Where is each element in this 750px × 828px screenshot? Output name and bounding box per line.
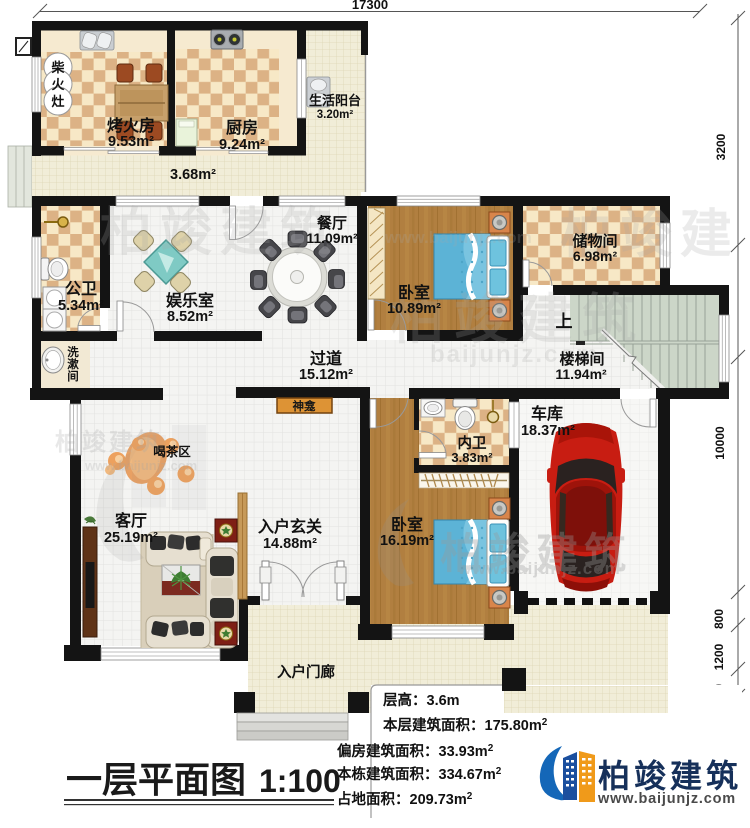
svg-text:11.09m²: 11.09m² <box>306 230 358 246</box>
svg-text:神龛: 神龛 <box>293 399 316 413</box>
svg-text:16.19m²: 16.19m² <box>380 533 434 549</box>
svg-text:www.baijunjz.com: www.baijunjz.com <box>597 791 736 807</box>
svg-text:厨房: 厨房 <box>226 118 258 137</box>
svg-text:本层建筑面积：175.80m2: 本层建筑面积：175.80m2 <box>383 716 548 734</box>
svg-text:www.baijunjz.com: www.baijunjz.com <box>384 228 532 247</box>
svg-text:喝茶区: 喝茶区 <box>153 444 191 459</box>
svg-text:入户玄关: 入户玄关 <box>258 517 322 536</box>
svg-text:8.52m²: 8.52m² <box>167 309 213 325</box>
svg-text:车库: 车库 <box>531 404 563 423</box>
svg-text:800: 800 <box>712 609 726 629</box>
svg-text:5.34m²: 5.34m² <box>58 298 104 314</box>
svg-text:公卫: 公卫 <box>65 280 97 298</box>
svg-text:一层平面图: 一层平面图 <box>66 759 246 800</box>
svg-text:3200: 3200 <box>714 133 728 160</box>
svg-text:6.98m²: 6.98m² <box>573 248 618 264</box>
svg-text:14.88m²: 14.88m² <box>263 536 317 552</box>
svg-text:柴: 柴 <box>50 60 65 75</box>
svg-text:1200: 1200 <box>712 643 726 670</box>
svg-text:柏竣建筑: 柏竣建筑 <box>100 204 340 262</box>
svg-text:15.12m²: 15.12m² <box>299 367 353 383</box>
svg-text:层高：3.6m: 层高：3.6m <box>383 691 460 709</box>
svg-text:9.24m²: 9.24m² <box>219 137 265 153</box>
svg-text:卧室: 卧室 <box>398 283 430 302</box>
svg-text:间: 间 <box>67 369 79 383</box>
svg-text:占地面积：209.73m2: 占地面积：209.73m2 <box>337 790 473 808</box>
svg-text:17300: 17300 <box>352 0 388 12</box>
svg-text:过道: 过道 <box>310 349 342 368</box>
svg-text:入户门廊: 入户门廊 <box>277 663 335 681</box>
svg-text:10.89m²: 10.89m² <box>387 301 441 317</box>
svg-text:1:100: 1:100 <box>259 763 341 799</box>
svg-text:柏竣建筑: 柏竣建筑 <box>598 758 742 794</box>
svg-text:3.20m²: 3.20m² <box>317 109 354 121</box>
svg-text:客厅: 客厅 <box>115 511 147 530</box>
svg-text:本栋建筑面积：334.67m2: 本栋建筑面积：334.67m2 <box>337 765 502 783</box>
svg-text:18.37m²: 18.37m² <box>521 423 575 439</box>
svg-text:10000: 10000 <box>713 426 727 460</box>
svg-text:11.94m²: 11.94m² <box>555 366 607 382</box>
svg-text:卧室: 卧室 <box>391 515 423 534</box>
svg-text:火: 火 <box>51 77 65 92</box>
svg-text:漱: 漱 <box>67 357 79 371</box>
svg-text:洗: 洗 <box>67 345 79 359</box>
svg-text:烤火房: 烤火房 <box>107 116 155 135</box>
svg-text:9.53m²: 9.53m² <box>108 134 154 150</box>
svg-text:娱乐室: 娱乐室 <box>166 291 214 310</box>
svg-text:上: 上 <box>556 312 573 331</box>
svg-text:3.83m²: 3.83m² <box>451 450 493 465</box>
svg-text:3.68m²: 3.68m² <box>170 167 216 183</box>
svg-text:生活阳台: 生活阳台 <box>309 93 361 108</box>
svg-text:25.19m²: 25.19m² <box>104 530 158 546</box>
svg-text:www.baijunjz.com: www.baijunjz.com <box>457 559 621 578</box>
svg-text:偏房建筑面积：33.93m2: 偏房建筑面积：33.93m2 <box>337 742 494 760</box>
svg-text:灶: 灶 <box>51 94 64 109</box>
